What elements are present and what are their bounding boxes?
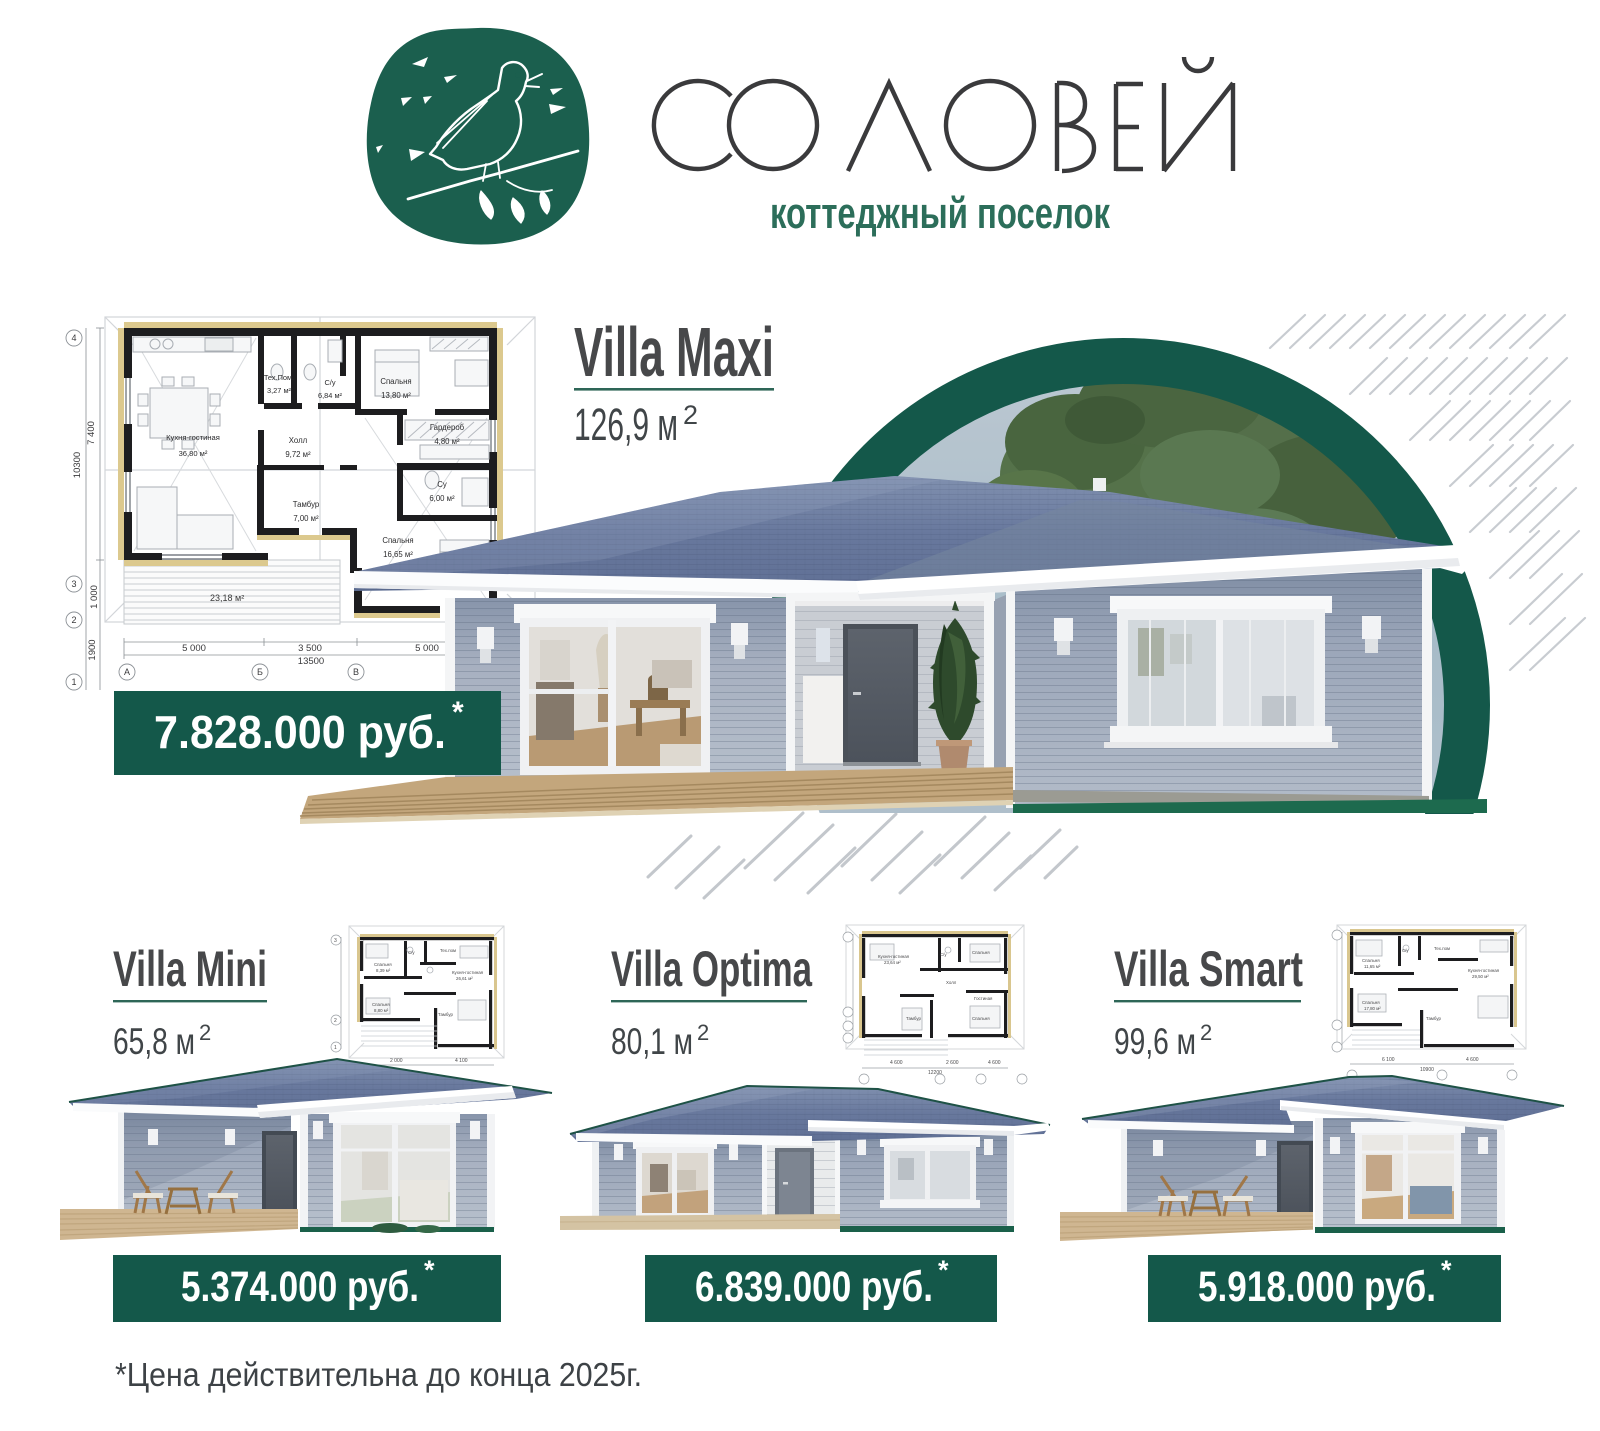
- svg-text:*Цена действительна до конца 2: *Цена действительна до конца 2025г.: [115, 1356, 642, 1393]
- svg-text:Спальня: Спальня: [382, 536, 413, 545]
- svg-text:1: 1: [334, 1045, 337, 1051]
- svg-text:7,00 м²: 7,00 м²: [293, 514, 319, 523]
- svg-text:Кухня-гостиная: Кухня-гостиная: [878, 954, 910, 959]
- svg-text:17,80 м²: 17,80 м²: [1364, 1006, 1381, 1011]
- svg-text:12200: 12200: [928, 1070, 942, 1076]
- svg-text:Спальня: Спальня: [1362, 958, 1380, 963]
- svg-text:*: *: [938, 1255, 949, 1285]
- svg-text:Villa Smart: Villa Smart: [1114, 941, 1303, 997]
- svg-text:10300: 10300: [72, 452, 83, 478]
- svg-text:5 000: 5 000: [415, 643, 439, 654]
- svg-text:В: В: [353, 667, 359, 677]
- svg-text:Спальня: Спальня: [374, 962, 392, 967]
- svg-text:3: 3: [71, 579, 76, 589]
- svg-text:7.828.000 руб.: 7.828.000 руб.: [154, 706, 446, 758]
- svg-text:6.839.000 руб.: 6.839.000 руб.: [695, 1263, 933, 1311]
- svg-text:Кухня-гостиная: Кухня-гостиная: [166, 433, 220, 442]
- svg-text:23,18 м²: 23,18 м²: [210, 593, 244, 603]
- svg-text:Кухня-гостиная: Кухня-гостиная: [1468, 968, 1500, 973]
- svg-text:Тамбур: Тамбур: [1426, 1016, 1441, 1021]
- svg-text:2 000: 2 000: [390, 1058, 403, 1064]
- svg-text:7 400: 7 400: [86, 421, 97, 445]
- svg-text:4,80 м²: 4,80 м²: [434, 437, 460, 446]
- svg-text:6,00 м²: 6,00 м²: [429, 494, 455, 503]
- svg-text:4 100: 4 100: [455, 1058, 468, 1064]
- svg-text:10900: 10900: [1420, 1067, 1434, 1073]
- svg-text:Спальня: Спальня: [380, 377, 411, 386]
- svg-text:1900: 1900: [87, 639, 98, 660]
- svg-text:4 600: 4 600: [890, 1060, 903, 1066]
- svg-text:5.374.000 руб.: 5.374.000 руб.: [181, 1263, 419, 1311]
- svg-text:16,65 м²: 16,65 м²: [383, 550, 413, 559]
- svg-text:4: 4: [71, 333, 76, 343]
- svg-text:11,65 м²: 11,65 м²: [1364, 964, 1381, 969]
- svg-text:коттеджный поселок: коттеджный поселок: [770, 189, 1111, 238]
- svg-text:5.918.000 руб.: 5.918.000 руб.: [1198, 1263, 1436, 1311]
- svg-text:Спальня: Спальня: [372, 1002, 390, 1007]
- svg-text:2: 2: [1200, 1020, 1212, 1045]
- svg-text:4 600: 4 600: [1466, 1057, 1479, 1063]
- svg-text:Тех.Пом.: Тех.Пом.: [264, 373, 294, 382]
- svg-text:9,72 м²: 9,72 м²: [285, 450, 311, 459]
- svg-text:Холл: Холл: [289, 436, 308, 445]
- svg-text:Б: Б: [257, 667, 263, 677]
- svg-text:13,80 м²: 13,80 м²: [381, 391, 411, 400]
- svg-text:1 000: 1 000: [89, 585, 100, 609]
- svg-text:Тамбур: Тамбур: [438, 1012, 453, 1017]
- svg-text:23,64 м²: 23,64 м²: [884, 960, 901, 965]
- svg-text:Villa Mini: Villa Mini: [113, 941, 267, 997]
- svg-text:Тех.пом: Тех.пом: [1434, 946, 1450, 951]
- svg-text:2: 2: [697, 1020, 709, 1045]
- svg-text:Спальня: Спальня: [972, 950, 990, 955]
- svg-text:26,61 м²: 26,61 м²: [456, 976, 473, 981]
- svg-text:80,1 м: 80,1 м: [611, 1021, 693, 1062]
- svg-text:*: *: [452, 696, 464, 729]
- svg-text:С/у: С/у: [1402, 948, 1409, 953]
- svg-text:3,27 м²: 3,27 м²: [267, 386, 292, 395]
- svg-text:2: 2: [199, 1020, 211, 1045]
- svg-text:3: 3: [334, 938, 337, 944]
- svg-text:36,80 м²: 36,80 м²: [179, 449, 208, 458]
- svg-text:Тех.пом: Тех.пом: [440, 948, 456, 953]
- svg-text:2 600: 2 600: [946, 1060, 959, 1066]
- svg-text:Холл: Холл: [946, 980, 957, 985]
- svg-text:*: *: [1441, 1255, 1452, 1285]
- svg-text:13500: 13500: [298, 656, 324, 667]
- svg-text:Спальня: Спальня: [972, 1016, 990, 1021]
- svg-text:С/у: С/у: [324, 378, 335, 387]
- svg-text:6,84 м²: 6,84 м²: [318, 391, 343, 400]
- svg-text:Villa Optima: Villa Optima: [611, 941, 813, 997]
- svg-text:С/у: С/у: [940, 952, 947, 957]
- svg-text:29,50 м²: 29,50 м²: [1472, 974, 1489, 979]
- svg-text:Кухня-гостиная: Кухня-гостиная: [452, 970, 484, 975]
- svg-text:126,9 м: 126,9 м: [574, 399, 678, 450]
- svg-text:Су: Су: [437, 480, 447, 489]
- svg-text:1: 1: [71, 677, 76, 687]
- svg-text:Villa Maxi: Villa Maxi: [574, 313, 774, 391]
- svg-text:5 000: 5 000: [182, 643, 206, 654]
- svg-text:Гардероб: Гардероб: [430, 423, 465, 432]
- svg-text:2: 2: [334, 1018, 337, 1024]
- svg-text:4 600: 4 600: [988, 1060, 1001, 1066]
- svg-text:2: 2: [71, 615, 76, 625]
- svg-text:8,80 м²: 8,80 м²: [374, 1008, 389, 1013]
- svg-text:А: А: [124, 667, 130, 677]
- svg-text:6 100: 6 100: [1382, 1057, 1395, 1063]
- svg-text:Тамбур: Тамбур: [293, 500, 320, 509]
- svg-text:Тамбур: Тамбур: [906, 1016, 921, 1021]
- svg-text:3 500: 3 500: [298, 643, 322, 654]
- svg-text:65,8 м: 65,8 м: [113, 1021, 195, 1062]
- svg-text:Спальня: Спальня: [1362, 1000, 1380, 1005]
- svg-text:99,6 м: 99,6 м: [1114, 1021, 1196, 1062]
- svg-text:Гостиная: Гостиная: [974, 996, 993, 1001]
- svg-text:С/у: С/у: [408, 950, 415, 955]
- svg-text:2: 2: [683, 400, 698, 430]
- svg-text:*: *: [424, 1255, 435, 1285]
- svg-text:8,39 м²: 8,39 м²: [376, 968, 391, 973]
